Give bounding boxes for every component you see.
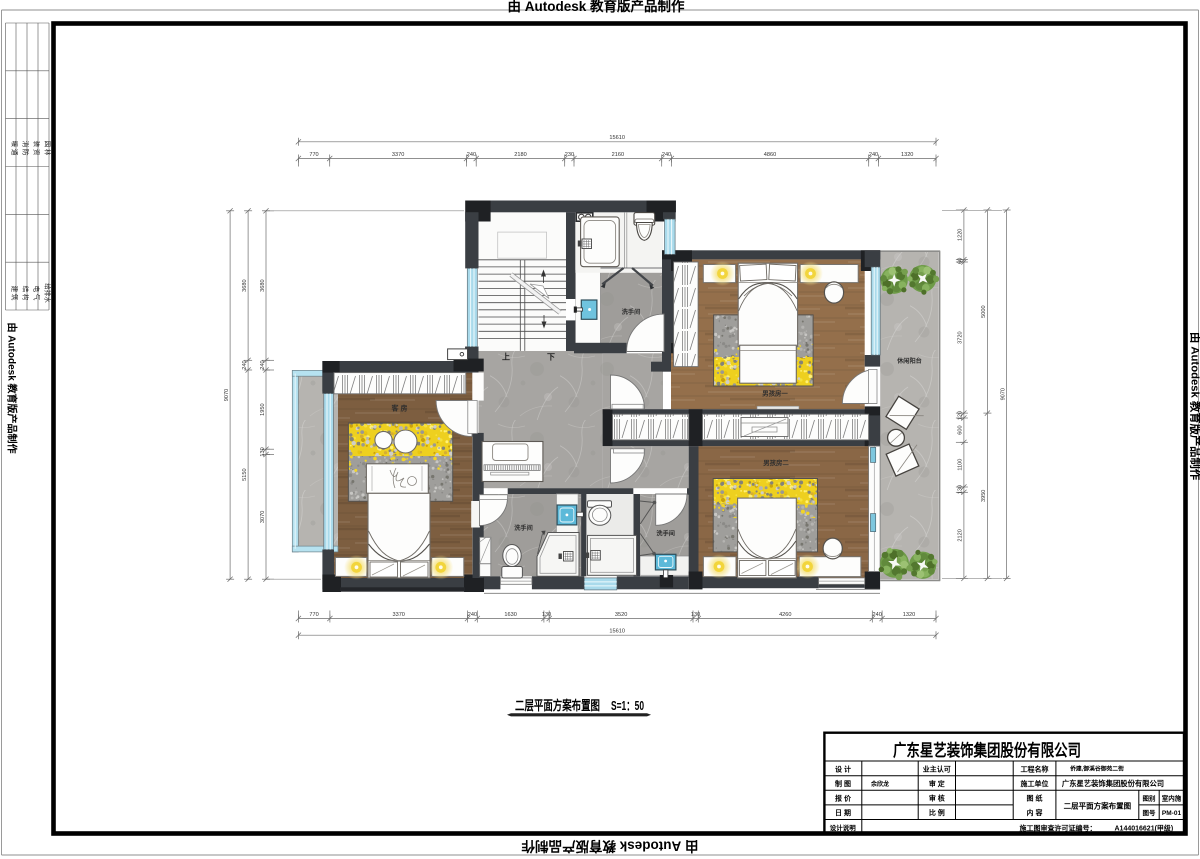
svg-text:由 Autodesk 教育版产品制作: 由 Autodesk 教育版产品制作 (1189, 332, 1200, 481)
svg-text:暖 通: 暖 通 (11, 141, 20, 156)
svg-text:由 Autodesk 教育版产品制作: 由 Autodesk 教育版产品制作 (6, 322, 19, 453)
svg-text:制 图: 制 图 (835, 779, 851, 788)
svg-text:2180: 2180 (514, 152, 526, 158)
svg-text:由 Autodesk 教育版产品制作: 由 Autodesk 教育版产品制作 (521, 839, 699, 855)
svg-text:侨建,御溪谷御苑二街: 侨建,御溪谷御苑二街 (1069, 765, 1124, 773)
svg-text:电 气: 电 气 (32, 286, 41, 301)
svg-text:设 计: 设 计 (835, 765, 851, 774)
svg-text:130: 130 (542, 612, 551, 618)
svg-text:230: 230 (565, 152, 574, 158)
svg-text:报 价: 报 价 (835, 794, 852, 803)
svg-text:1950: 1950 (260, 403, 266, 415)
svg-text:120: 120 (958, 411, 964, 420)
svg-text:内 容: 内 容 (1027, 808, 1043, 817)
svg-text:4860: 4860 (764, 152, 776, 158)
svg-text:1220: 1220 (958, 229, 964, 241)
svg-text:二层平面方案布置图: 二层平面方案布置图 (515, 698, 600, 713)
svg-text:3950: 3950 (981, 490, 987, 502)
svg-text:3720: 3720 (958, 331, 964, 343)
svg-text:240: 240 (260, 360, 266, 369)
svg-text:审 核: 审 核 (929, 794, 945, 803)
svg-text:240: 240 (468, 612, 477, 618)
svg-text:130: 130 (691, 612, 700, 618)
svg-text:比 例: 比 例 (929, 808, 945, 817)
svg-text:建 筑: 建 筑 (11, 286, 20, 301)
svg-text:3070: 3070 (260, 511, 266, 523)
svg-text:S=1：50: S=1：50 (611, 699, 644, 713)
svg-text:1320: 1320 (901, 152, 913, 158)
svg-text:上: 上 (502, 352, 510, 362)
svg-text:3370: 3370 (392, 152, 404, 158)
svg-text:3680: 3680 (242, 279, 248, 291)
svg-text:休闲阳台: 休闲阳台 (896, 357, 922, 365)
svg-text:240: 240 (242, 360, 248, 369)
svg-text:2120: 2120 (958, 529, 964, 541)
svg-text:130: 130 (958, 485, 964, 494)
svg-text:洗手间: 洗手间 (656, 530, 675, 538)
svg-text:1630: 1630 (504, 612, 516, 618)
svg-text:1100: 1100 (958, 459, 964, 471)
svg-text:240: 240 (869, 152, 878, 158)
svg-text:图号: 图号 (1143, 808, 1157, 817)
svg-text:770: 770 (309, 152, 318, 158)
svg-text:男孩房一: 男孩房一 (762, 389, 788, 398)
svg-text:洗手间: 洗手间 (622, 308, 641, 316)
svg-text:5000: 5000 (981, 305, 987, 317)
svg-text:240: 240 (467, 152, 476, 158)
svg-text:3370: 3370 (392, 612, 404, 618)
svg-text:600: 600 (958, 425, 964, 434)
svg-text:770: 770 (309, 612, 318, 618)
svg-text:室内施: 室内施 (1162, 794, 1182, 803)
svg-text:施工图审查许可证编号：: 施工图审查许可证编号： (1020, 824, 1097, 833)
svg-text:施工单位: 施工单位 (1021, 779, 1049, 788)
svg-text:消 防: 消 防 (21, 141, 30, 156)
svg-text:下: 下 (547, 353, 555, 362)
svg-text:9070: 9070 (224, 389, 230, 401)
svg-text:240: 240 (873, 612, 882, 618)
svg-text:由 Autodesk 教育版产品制作: 由 Autodesk 教育版产品制作 (507, 0, 685, 14)
svg-text:广东星艺装饰集团股份有限公司: 广东星艺装饰集团股份有限公司 (893, 740, 1081, 760)
svg-text:1320: 1320 (903, 612, 915, 618)
svg-text:60: 60 (958, 258, 964, 264)
svg-text:130: 130 (260, 447, 266, 456)
svg-text:男孩房二: 男孩房二 (763, 458, 789, 467)
svg-text:广东星艺装饰集团股份有限公司: 广东星艺装饰集团股份有限公司 (1062, 779, 1164, 788)
svg-text:15610: 15610 (609, 135, 625, 141)
svg-text:工程名称: 工程名称 (1021, 765, 1049, 774)
svg-text:园 林: 园 林 (43, 141, 52, 156)
svg-text:审 定: 审 定 (929, 779, 945, 788)
svg-text:240: 240 (662, 152, 671, 158)
svg-text:9070: 9070 (1000, 388, 1006, 400)
svg-text:PM-01: PM-01 (1162, 810, 1182, 817)
svg-text:设计说明: 设计说明 (830, 823, 857, 832)
svg-text:洗手间: 洗手间 (514, 524, 533, 532)
svg-text:装 资: 装 资 (32, 141, 41, 156)
svg-text:3680: 3680 (260, 279, 266, 291)
svg-text:15610: 15610 (609, 629, 625, 635)
svg-text:5150: 5150 (242, 468, 248, 480)
svg-text:图别: 图别 (1143, 794, 1157, 803)
svg-text:图 纸: 图 纸 (1027, 794, 1043, 803)
svg-text:二层平面方案布置图: 二层平面方案布置图 (1064, 801, 1132, 811)
svg-text:给排水: 给排水 (43, 283, 52, 303)
svg-text:业主认可: 业主认可 (923, 765, 951, 774)
svg-text:A144016621(甲级): A144016621(甲级) (1115, 824, 1174, 833)
svg-text:日 期: 日 期 (835, 808, 851, 817)
svg-text:4260: 4260 (779, 612, 791, 618)
svg-text:客 房: 客 房 (391, 404, 408, 413)
svg-text:结 构: 结 构 (21, 286, 30, 301)
svg-text:3520: 3520 (615, 612, 627, 618)
svg-text:2160: 2160 (612, 152, 624, 158)
svg-text:余欣龙: 余欣龙 (870, 780, 889, 788)
